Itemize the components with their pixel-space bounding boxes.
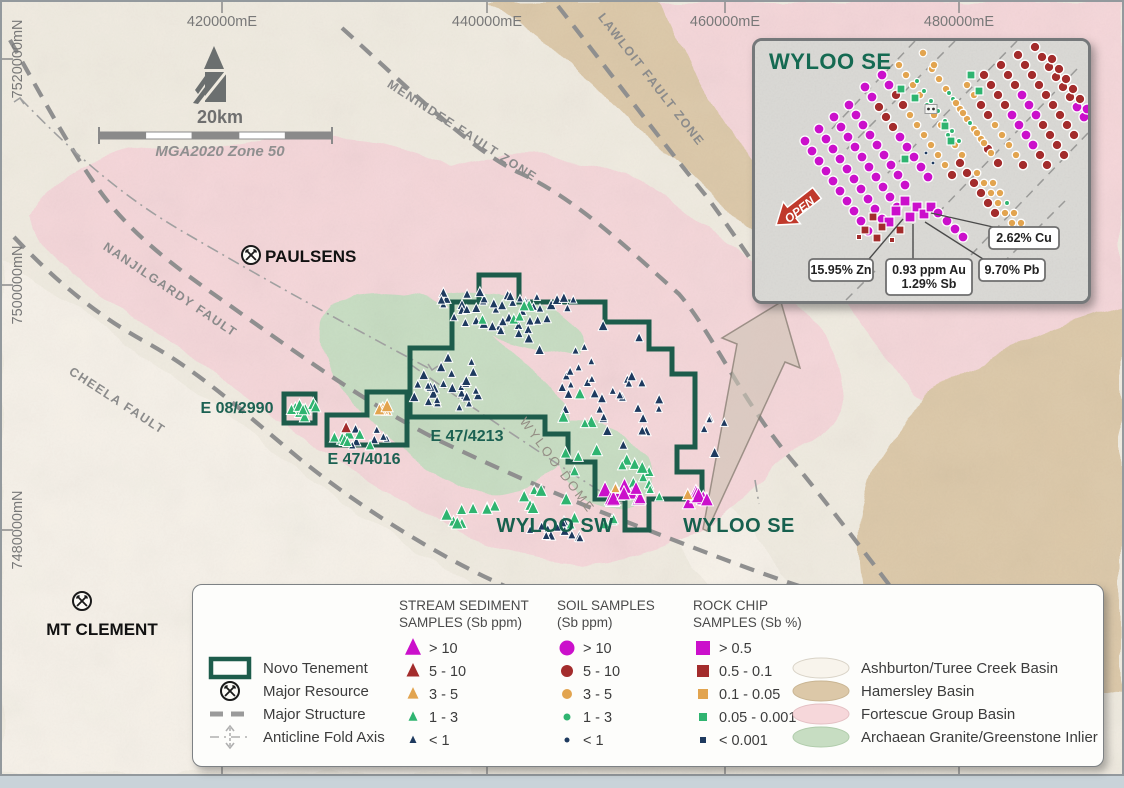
soil-sample-magenta — [958, 232, 968, 242]
legend-geology-swatch — [793, 658, 849, 678]
soil-sample-dark_red — [1030, 42, 1040, 52]
soil-sample-magenta — [1082, 104, 1088, 114]
rock-chip-magenta — [900, 196, 910, 206]
soil-sample-dark_red — [1055, 110, 1065, 120]
soil-sample-magenta — [856, 216, 866, 226]
legend-symbol-square-dark_red — [697, 665, 709, 677]
soil-sample-orange — [996, 189, 1004, 197]
soil-sample-magenta — [828, 144, 838, 154]
soil-sample-dark_red — [1010, 80, 1020, 90]
soil-sample-orange — [987, 149, 995, 157]
legend-geology-label: Fortescue Group Basin — [861, 706, 1015, 723]
soil-sample-orange — [941, 161, 949, 169]
major-resource-icon — [242, 246, 260, 264]
legend-range-label: > 10 — [583, 641, 612, 657]
soil-sample-green — [1004, 200, 1009, 205]
soil-sample-magenta — [850, 142, 860, 152]
soil-sample-green — [914, 78, 919, 83]
legend-range-label: 5 - 10 — [429, 664, 466, 680]
soil-sample-magenta — [878, 182, 888, 192]
legend-range-label: < 0.001 — [719, 733, 768, 749]
soil-sample-magenta — [814, 156, 824, 166]
soil-sample-dark_red — [1048, 100, 1058, 110]
tenement-label: E 08/2990 — [201, 400, 274, 417]
legend-range-label: < 1 — [583, 733, 604, 749]
legend-range-label: 1 - 3 — [429, 710, 458, 726]
legend-symbol-triangle-dark_red — [407, 663, 420, 677]
soil-sample-magenta — [829, 112, 839, 122]
soil-sample-dark_red — [986, 80, 996, 90]
legend-range-label: 5 - 10 — [583, 664, 620, 680]
sample-pair-marker — [925, 105, 937, 114]
rock-chip-red — [873, 234, 881, 242]
soil-sample-dark_red — [1061, 74, 1071, 84]
soil-sample-magenta — [872, 140, 882, 150]
rock-chip-green — [975, 87, 983, 95]
legend-range-label: > 10 — [429, 641, 458, 657]
soil-sample-orange — [1005, 141, 1013, 149]
place-label: MT CLEMENT — [46, 620, 158, 639]
soil-sample-magenta — [857, 152, 867, 162]
soil-sample-magenta — [893, 170, 903, 180]
soil-sample-magenta — [933, 208, 943, 218]
rock-chip-green — [911, 94, 919, 102]
map-figure: 420000mE440000mE460000mE480000mE7520000m… — [0, 0, 1124, 788]
soil-sample-dark_red — [881, 112, 891, 122]
legend-symbol-circle-magenta — [560, 641, 575, 656]
rock-chip-red — [896, 226, 904, 234]
legend-symbol-circle-dark_red — [561, 665, 573, 677]
soil-sample-magenta — [835, 186, 845, 196]
legend-column-title: ROCK CHIP — [693, 598, 768, 613]
soil-sample-orange — [973, 129, 981, 137]
soil-sample-orange — [1017, 219, 1025, 227]
soil-sample-magenta — [860, 82, 870, 92]
legend-map-item-label: Anticline Fold Axis — [263, 729, 385, 746]
scale-distance-label: 20km — [197, 107, 243, 127]
legend-resource-icon — [221, 682, 239, 700]
rock-chip-red — [861, 226, 869, 234]
soil-sample-orange — [994, 199, 1002, 207]
soil-sample-magenta — [844, 100, 854, 110]
soil-sample-orange — [952, 99, 960, 107]
easting-label: 420000mE — [187, 14, 257, 30]
callout-text: 2.62% Cu — [996, 231, 1052, 245]
soil-sample-dark_red — [1034, 80, 1044, 90]
inset-svg: 15.95% Zn0.93 ppm Au1.29% Sb9.70% Pb2.62… — [755, 41, 1088, 301]
soil-sample-magenta — [863, 194, 873, 204]
soil-sample-navy — [924, 151, 928, 155]
soil-sample-dark_red — [1000, 100, 1010, 110]
rock-chip-magenta — [905, 212, 915, 222]
soil-sample-dark_red — [1062, 120, 1072, 130]
soil-sample-dark_red — [955, 158, 965, 168]
soil-sample-dark_red — [888, 122, 898, 132]
soil-sample-dark_red — [874, 102, 884, 112]
soil-sample-magenta — [902, 142, 912, 152]
rock-chip-green — [941, 122, 949, 130]
soil-sample-dark_red — [1037, 52, 1047, 62]
soil-sample-magenta — [1007, 110, 1017, 120]
soil-sample-dark_red — [1069, 130, 1079, 140]
soil-sample-dark_red — [976, 100, 986, 110]
soil-sample-orange — [935, 75, 943, 83]
soil-sample-green — [949, 128, 954, 133]
legend-range-label: > 0.5 — [719, 641, 752, 657]
rock-chip-green — [947, 137, 955, 145]
soil-sample-magenta — [950, 224, 960, 234]
soil-sample-magenta — [835, 154, 845, 164]
inset-title: WYLOO SE — [769, 49, 892, 75]
legend-geology-label: Hamersley Basin — [861, 683, 974, 700]
soil-sample-magenta — [849, 174, 859, 184]
legend-range-label: < 1 — [429, 733, 450, 749]
soil-sample-magenta — [916, 162, 926, 172]
soil-sample-green — [956, 138, 961, 143]
area-label: WYLOO SW — [496, 515, 613, 537]
rock-chip-green — [967, 71, 975, 79]
soil-sample-orange — [1001, 209, 1009, 217]
soil-sample-dark_red — [1042, 160, 1052, 170]
soil-sample-magenta — [858, 120, 868, 130]
callout-text: 1.29% Sb — [902, 277, 957, 291]
soil-sample-dark_red — [1027, 70, 1037, 80]
soil-sample-orange — [1008, 219, 1016, 227]
legend-column-title: SOIL SAMPLES — [557, 598, 655, 613]
soil-sample-dark_red — [990, 208, 1000, 218]
rock-chip-red-small — [857, 235, 862, 240]
soil-sample-orange — [998, 131, 1006, 139]
legend-map-item-label: Major Resource — [263, 683, 369, 700]
soil-sample-magenta — [856, 184, 866, 194]
soil-sample-dark_red — [1052, 140, 1062, 150]
soil-sample-dark_red — [1041, 90, 1051, 100]
soil-sample-orange — [991, 121, 999, 129]
soil-sample-magenta — [900, 180, 910, 190]
callout-text: 15.95% Zn — [810, 263, 871, 277]
rock-chip-green — [897, 85, 905, 93]
legend: Novo TenementMajor ResourceMajor Structu… — [192, 584, 1104, 767]
soil-sample-dark_red — [993, 158, 1003, 168]
scale-datum-label: MGA2020 Zone 50 — [155, 143, 285, 160]
soil-sample-orange — [895, 61, 903, 69]
soil-sample-dark_red — [976, 188, 986, 198]
soil-sample-magenta — [814, 124, 824, 134]
soil-sample-magenta — [842, 164, 852, 174]
soil-sample-dark_red — [996, 60, 1006, 70]
legend-symbol-circle-orange — [562, 689, 572, 699]
legend-range-label: 0.5 - 0.1 — [719, 664, 772, 680]
soil-sample-magenta — [895, 132, 905, 142]
soil-sample-orange — [906, 111, 914, 119]
soil-sample-dark_red — [993, 90, 1003, 100]
legend-range-label: 3 - 5 — [429, 687, 458, 703]
soil-sample-orange — [959, 109, 967, 117]
legend-geology-label: Archaean Granite/Greenstone Inlier — [861, 729, 1098, 746]
soil-sample-orange — [980, 179, 988, 187]
soil-sample-magenta — [864, 162, 874, 172]
callout-text: 9.70% Pb — [985, 263, 1040, 277]
soil-sample-magenta — [867, 92, 877, 102]
legend-geology-swatch — [793, 704, 849, 724]
soil-sample-dark_red — [983, 110, 993, 120]
soil-sample-dark_red — [1068, 84, 1078, 94]
legend-geology-swatch — [793, 727, 849, 747]
tenement-label: E 47/4016 — [328, 451, 401, 468]
soil-sample-magenta — [821, 166, 831, 176]
soil-sample-magenta — [871, 172, 881, 182]
soil-sample-orange — [1012, 151, 1020, 159]
callout-box: 0.93 ppm Au1.29% Sb — [886, 259, 972, 295]
soil-sample-dark_red — [1003, 70, 1013, 80]
soil-sample-orange — [927, 141, 935, 149]
soil-sample-magenta — [843, 132, 853, 142]
soil-sample-dark_red — [1059, 150, 1069, 160]
soil-sample-magenta — [821, 134, 831, 144]
easting-label: 440000mE — [452, 14, 522, 30]
soil-sample-magenta — [851, 110, 861, 120]
easting-label: 460000mE — [690, 14, 760, 30]
legend-range-label: 1 - 3 — [583, 710, 612, 726]
legend-symbol-square-magenta — [696, 641, 710, 655]
soil-sample-magenta — [885, 192, 895, 202]
legend-column-title: SAMPLES (Sb ppm) — [399, 615, 522, 630]
soil-sample-orange — [1010, 209, 1018, 217]
soil-sample-orange — [902, 71, 910, 79]
soil-sample-dark_red — [979, 70, 989, 80]
easting-label: 480000mE — [924, 14, 994, 30]
legend-symbol-square-navy — [700, 737, 706, 743]
legend-svg: Novo TenementMajor ResourceMajor Structu… — [193, 585, 1100, 763]
soil-sample-magenta — [1014, 120, 1024, 130]
soil-sample-magenta — [1031, 110, 1041, 120]
soil-sample-dark_red — [1020, 60, 1030, 70]
soil-sample-magenta — [1017, 90, 1027, 100]
legend-symbol-triangle-magenta — [405, 638, 421, 655]
legend-symbol-triangle-navy — [410, 736, 417, 743]
legend-symbol-circle-green — [564, 714, 571, 721]
soil-sample-orange — [920, 131, 928, 139]
inset-map-wyloo-se: 15.95% Zn0.93 ppm Au1.29% Sb9.70% Pb2.62… — [752, 38, 1091, 304]
soil-sample-magenta — [886, 160, 896, 170]
legend-geology-swatch — [793, 681, 849, 701]
soil-sample-green — [946, 90, 951, 95]
soil-sample-dark_red — [1018, 160, 1028, 170]
soil-sample-magenta — [842, 196, 852, 206]
soil-sample-magenta — [923, 172, 933, 182]
soil-sample-dark_red — [962, 168, 972, 178]
soil-sample-orange — [930, 61, 938, 69]
soil-sample-dark_red — [947, 170, 957, 180]
major-resource-icon — [73, 592, 91, 610]
area-label: WYLOO SE — [683, 515, 795, 537]
soil-sample-magenta — [1021, 130, 1031, 140]
soil-sample-dark_red — [1013, 50, 1023, 60]
soil-sample-orange — [980, 139, 988, 147]
place-label: PAULSENS — [265, 247, 356, 266]
rock-chip-red-small — [890, 238, 895, 243]
soil-sample-magenta — [800, 136, 810, 146]
legend-range-label: 0.05 - 0.001 — [719, 710, 796, 726]
legend-symbol-square-green — [699, 713, 707, 721]
legend-geology-label: Ashburton/Turee Creek Basin — [861, 660, 1058, 677]
soil-sample-dark_red — [1045, 130, 1055, 140]
legend-column-title: STREAM SEDIMENT — [399, 598, 529, 613]
soil-sample-navy — [931, 161, 935, 165]
legend-symbol-square-orange — [698, 689, 708, 699]
soil-sample-orange — [987, 189, 995, 197]
soil-sample-orange — [919, 49, 927, 57]
soil-sample-magenta — [879, 150, 889, 160]
legend-column-title: (Sb ppm) — [557, 615, 613, 630]
legend-range-label: 0.1 - 0.05 — [719, 687, 780, 703]
soil-sample-orange — [963, 81, 971, 89]
rock-chip-red — [878, 223, 886, 231]
soil-sample-green — [928, 98, 933, 103]
legend-symbol-triangle-green — [409, 711, 418, 720]
callout-text: 0.93 ppm Au — [892, 263, 966, 277]
soil-sample-dark_red — [983, 198, 993, 208]
legend-map-item-label: Novo Tenement — [263, 660, 369, 677]
soil-sample-magenta — [1028, 140, 1038, 150]
soil-sample-magenta — [828, 176, 838, 186]
callout-box: 9.70% Pb — [979, 259, 1045, 281]
soil-sample-orange — [973, 169, 981, 177]
soil-sample-orange — [934, 151, 942, 159]
soil-sample-dark_red — [969, 178, 979, 188]
soil-sample-orange — [989, 179, 997, 187]
tenement-label: E 47/4213 — [431, 428, 504, 445]
callout-box: 2.62% Cu — [989, 227, 1059, 249]
rock-chip-green — [901, 155, 909, 163]
soil-sample-dark_red — [1038, 120, 1048, 130]
soil-sample-magenta — [849, 206, 859, 216]
soil-sample-orange — [913, 121, 921, 129]
legend-symbol-circle-navy — [565, 738, 570, 743]
soil-sample-magenta — [909, 152, 919, 162]
soil-sample-magenta — [836, 122, 846, 132]
legend-tenement-icon — [211, 659, 249, 677]
soil-sample-dark_red — [1054, 64, 1064, 74]
legend-column-title: SAMPLES (Sb %) — [693, 615, 802, 630]
soil-sample-green — [967, 120, 972, 125]
soil-sample-magenta — [807, 146, 817, 156]
soil-sample-green — [921, 88, 926, 93]
soil-sample-magenta — [1024, 100, 1034, 110]
legend-map-item-label: Major Structure — [263, 706, 366, 723]
soil-sample-dark_red — [1035, 150, 1045, 160]
soil-sample-dark_red — [1047, 54, 1057, 64]
legend-range-label: 3 - 5 — [583, 687, 612, 703]
rock-chip-magenta — [891, 206, 901, 216]
rock-chip-red — [869, 213, 877, 221]
soil-sample-dark_red — [898, 100, 908, 110]
soil-sample-dark_red — [1075, 94, 1085, 104]
soil-sample-magenta — [884, 80, 894, 90]
callout-box: 15.95% Zn — [809, 259, 873, 281]
soil-sample-magenta — [865, 130, 875, 140]
legend-symbol-triangle-orange — [408, 687, 419, 698]
